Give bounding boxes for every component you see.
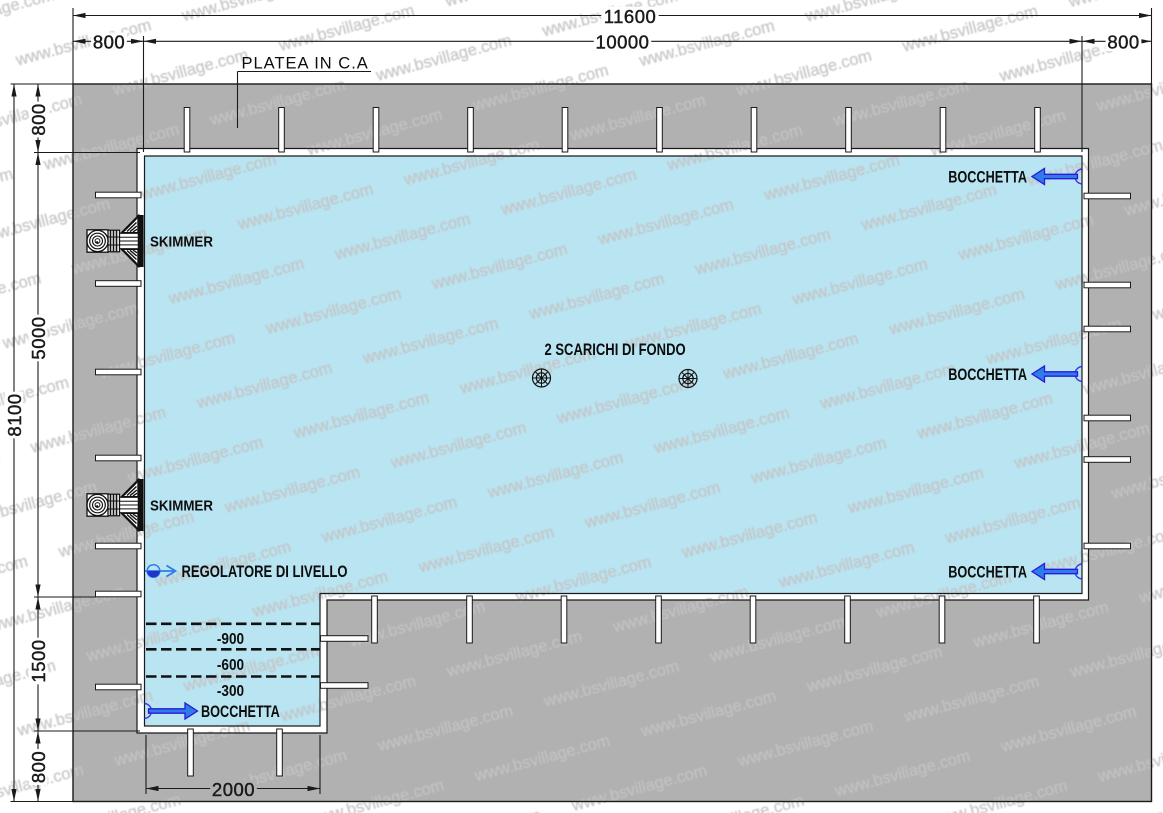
svg-text:800: 800 (1107, 32, 1139, 53)
svg-text:-600: -600 (217, 657, 244, 674)
svg-text:800: 800 (93, 32, 125, 53)
svg-text:-900: -900 (217, 631, 244, 648)
svg-text:1500: 1500 (28, 639, 49, 682)
svg-text:2 SCARICHI DI FONDO: 2 SCARICHI DI FONDO (545, 342, 686, 360)
svg-text:PLATEA IN C.A: PLATEA IN C.A (242, 54, 369, 72)
svg-text:BOCCHETTA: BOCCHETTA (201, 704, 280, 722)
svg-text:SKIMMER: SKIMMER (150, 497, 213, 514)
svg-text:REGOLATORE DI LIVELLO: REGOLATORE DI LIVELLO (182, 564, 348, 582)
svg-text:800: 800 (28, 751, 49, 783)
svg-text:5000: 5000 (28, 316, 49, 359)
svg-text:2000: 2000 (212, 779, 255, 800)
svg-text:800: 800 (28, 103, 49, 135)
svg-text:-300: -300 (217, 683, 244, 700)
svg-text:10000: 10000 (596, 32, 650, 53)
svg-text:BOCCHETTA: BOCCHETTA (948, 564, 1027, 582)
svg-text:BOCCHETTA: BOCCHETTA (948, 169, 1027, 187)
svg-text:BOCCHETTA: BOCCHETTA (948, 367, 1027, 385)
svg-text:8100: 8100 (4, 393, 25, 436)
svg-text:SKIMMER: SKIMMER (150, 233, 213, 250)
svg-text:11600: 11600 (604, 6, 657, 27)
